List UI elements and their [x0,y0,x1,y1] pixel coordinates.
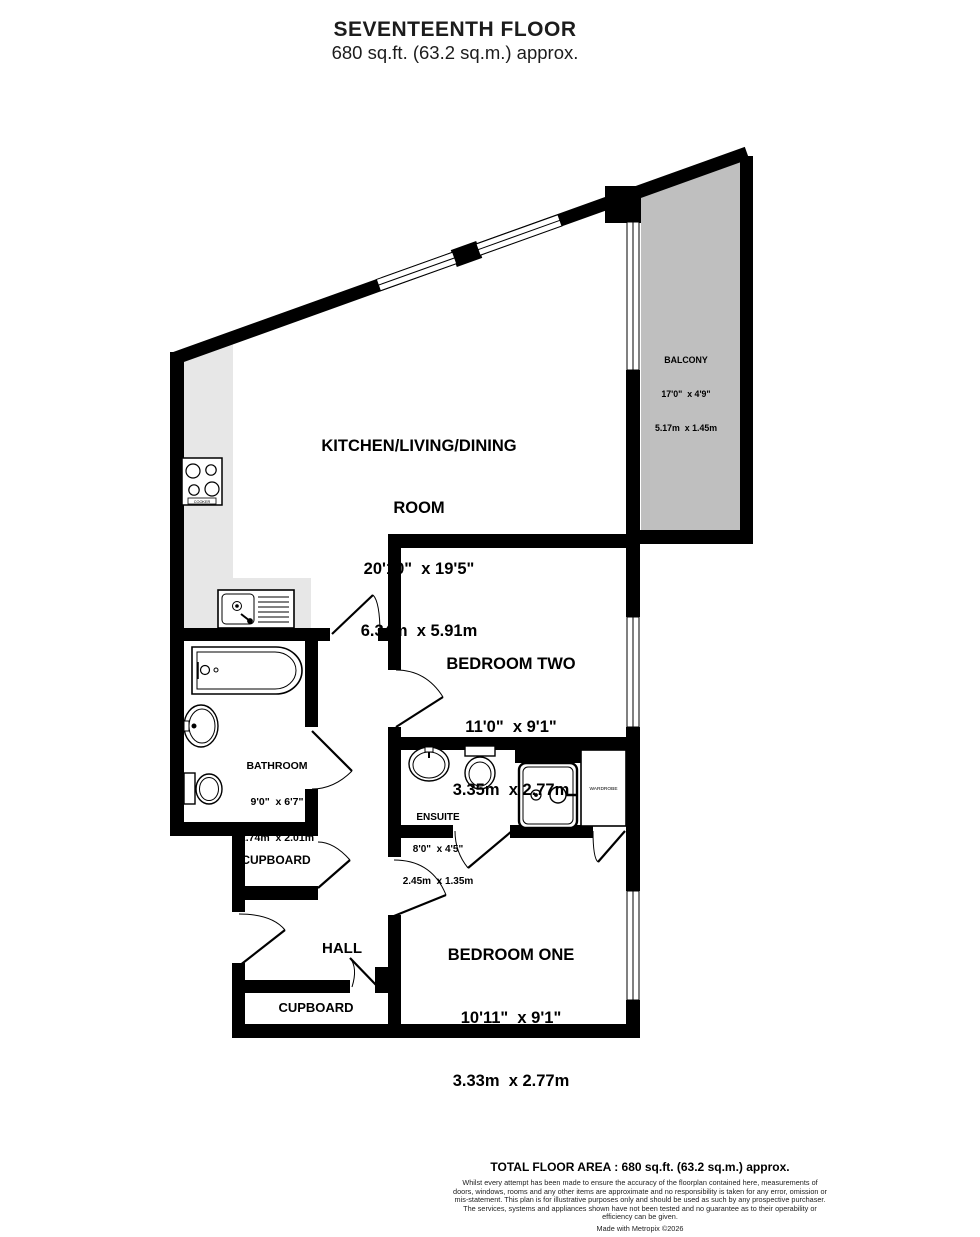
bedroom-one-dims-metric: 3.33m x 2.77m [448,1071,575,1092]
bathroom-dims-metric: 2.74m x 2.01m [240,832,314,844]
kitchen-dims-imperial: 20'10" x 19'5" [321,559,516,580]
floorplan-page: SEVENTEENTH FLOOR 680 sq.ft. (63.2 sq.m.… [0,0,980,1237]
balcony-label: BALCONY 17'0" x 4'9" 5.17m x 1.45m [655,332,717,457]
kitchen-name-line1: KITCHEN/LIVING/DINING [321,436,516,457]
hall-label: HALL [322,940,362,959]
kitchen-name-line2: ROOM [321,498,516,519]
cupboard-lower-label: CUPBOARD [278,1000,353,1016]
ensuite-label: ENSUITE 8'0" x 4'5" 2.45m x 1.35m [403,791,474,910]
balcony-name: BALCONY [655,355,717,366]
window-bedroom-one-icon [627,891,639,1000]
door-cupboard-lower-icon [350,958,377,987]
door-entrance-icon [239,914,285,966]
bedroom-two-dims-imperial: 11'0" x 9'1" [446,717,575,738]
bedroom-one-dims-imperial: 10'11" x 9'1" [448,1008,575,1029]
hob-icon: COOKER [182,458,222,505]
total-floor-area: TOTAL FLOOR AREA : 680 sq.ft. (63.2 sq.m… [490,1160,789,1174]
ensuite-dims-imperial: 8'0" x 4'5" [403,845,474,856]
window-diagonal-left-icon [376,252,456,291]
ensuite-washbasin-icon [409,747,449,781]
bedroom-one-name: BEDROOM ONE [448,945,575,966]
window-diagonal-right-icon [476,215,562,256]
bathtub-icon [192,647,302,694]
wardrobe-label: WARDROBE [589,786,617,792]
disclaimer-text: Whilst every attempt has been made to en… [453,1179,827,1222]
balcony-dims-metric: 5.17m x 1.45m [655,423,717,434]
balcony-door-icon [627,222,639,370]
cupboard-upper-label: CUPBOARD [241,853,310,868]
credit-text: Made with Metropix ©2026 [597,1224,684,1233]
door-bathroom-icon [312,731,352,789]
door-wardrobe-icon [593,831,625,862]
bedroom-two-name: BEDROOM TWO [446,654,575,675]
bathroom-dims-imperial: 9'0" x 6'7" [240,796,314,808]
wardrobe-box: WARDROBE [581,750,626,826]
bedroom-one-label: BEDROOM ONE 10'11" x 9'1" 3.33m x 2.77m [448,903,575,1134]
balcony-dims-imperial: 17'0" x 4'9" [655,389,717,400]
toilet-icon [184,773,222,804]
washbasin-icon [184,705,218,747]
cooker-label: COOKER [194,500,211,504]
ensuite-dims-metric: 2.45m x 1.35m [403,877,474,888]
bathroom-label: BATHROOM 9'0" x 6'7" 2.74m x 2.01m [240,736,314,868]
window-bedroom-two-icon [627,617,639,727]
bathroom-name: BATHROOM [240,760,314,772]
sink-icon [218,590,294,628]
ensuite-name: ENSUITE [403,813,474,824]
door-cupboard-upper-icon [318,842,350,888]
